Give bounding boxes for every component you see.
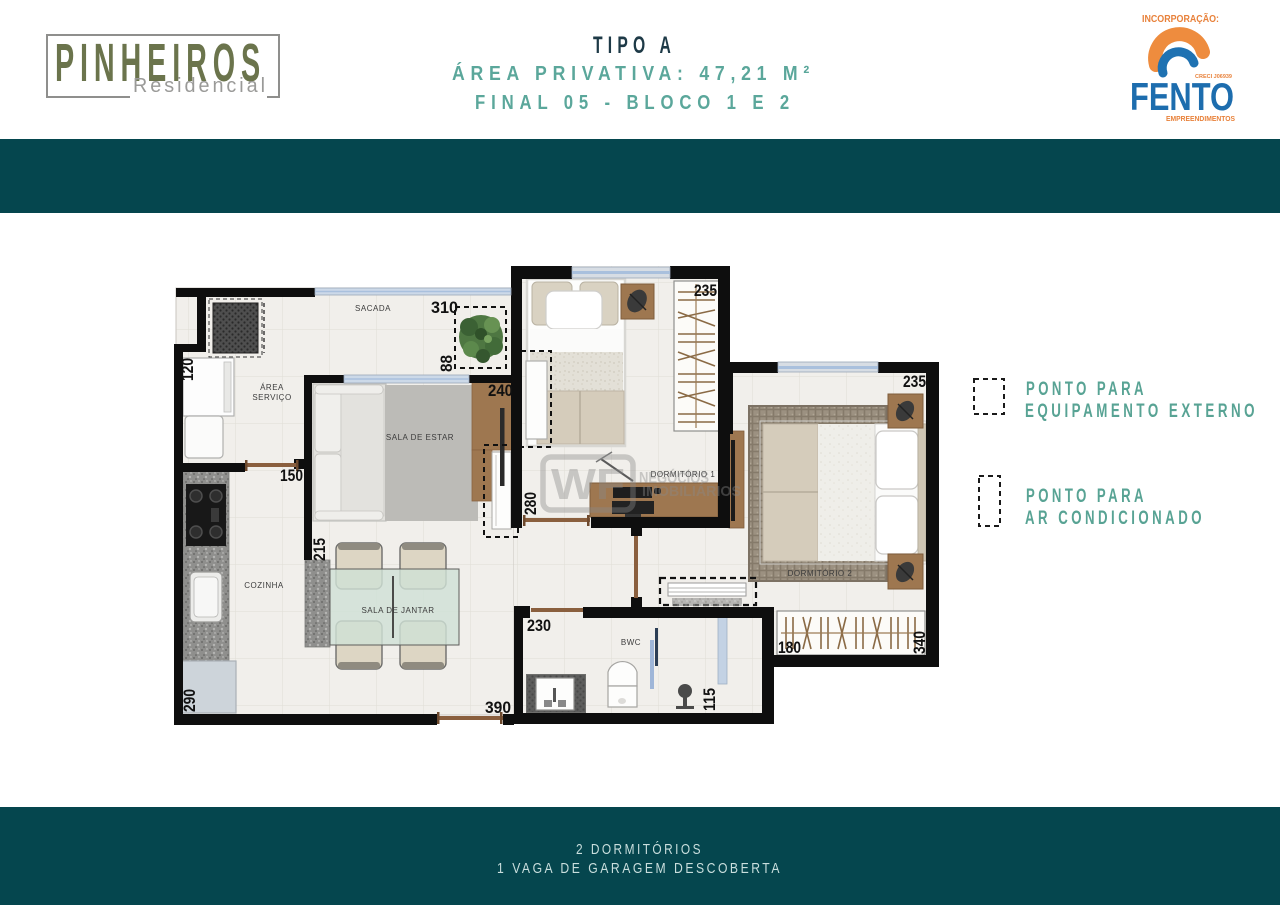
svg-text:PONTO PARA: PONTO PARA: [1026, 379, 1147, 400]
svg-text:310: 310: [431, 299, 458, 317]
svg-text:AR CONDICIONADO: AR CONDICIONADO: [1025, 508, 1205, 529]
svg-text:240: 240: [488, 382, 513, 400]
svg-text:235: 235: [903, 373, 926, 391]
svg-text:DORMITÓRIO 2: DORMITÓRIO 2: [788, 569, 853, 578]
svg-text:2 DORMITÓRIOS: 2 DORMITÓRIOS: [576, 841, 703, 858]
svg-text:EMPREENDIMENTOS: EMPREENDIMENTOS: [1166, 114, 1235, 123]
svg-text:88: 88: [438, 355, 456, 372]
svg-text:280: 280: [522, 492, 540, 515]
svg-text:Residencial: Residencial: [133, 75, 268, 97]
svg-text:ÁREA PRIVATIVA: 47,21 M²: ÁREA PRIVATIVA: 47,21 M²: [452, 62, 815, 85]
svg-text:EQUIPAMENTO EXTERNO: EQUIPAMENTO EXTERNO: [1025, 401, 1258, 422]
svg-text:115: 115: [701, 688, 719, 711]
svg-text:120: 120: [179, 358, 197, 381]
svg-text:IMOBILIÁRIOS: IMOBILIÁRIOS: [642, 483, 741, 500]
svg-text:390: 390: [485, 699, 511, 717]
svg-text:FINAL 05 - BLOCO 1 E 2: FINAL 05 - BLOCO 1 E 2: [475, 92, 795, 114]
svg-text:150: 150: [280, 467, 303, 485]
svg-text:340: 340: [911, 631, 929, 654]
svg-text:SACADA: SACADA: [355, 304, 391, 313]
svg-text:180: 180: [778, 639, 801, 657]
svg-text:215: 215: [311, 538, 329, 561]
svg-text:1 VAGA DE GARAGEM DESCOBERTA: 1 VAGA DE GARAGEM DESCOBERTA: [497, 861, 782, 877]
svg-text:290: 290: [181, 689, 199, 712]
svg-text:SALA DE JANTAR: SALA DE JANTAR: [361, 606, 434, 615]
svg-text:COZINHA: COZINHA: [244, 581, 284, 590]
svg-text:WF: WF: [551, 460, 625, 509]
svg-text:TIPO A: TIPO A: [593, 32, 676, 59]
svg-text:230: 230: [527, 617, 551, 635]
svg-text:FENTO: FENTO: [1130, 76, 1234, 119]
svg-text:ÁREA: ÁREA: [260, 383, 284, 392]
svg-text:SALA DE ESTAR: SALA DE ESTAR: [386, 433, 454, 442]
svg-text:PONTO PARA: PONTO PARA: [1026, 486, 1147, 507]
svg-text:INCORPORAÇÃO:: INCORPORAÇÃO:: [1142, 12, 1219, 25]
svg-text:235: 235: [694, 282, 717, 300]
svg-text:SERVIÇO: SERVIÇO: [252, 393, 291, 402]
svg-text:BWC: BWC: [621, 638, 641, 647]
